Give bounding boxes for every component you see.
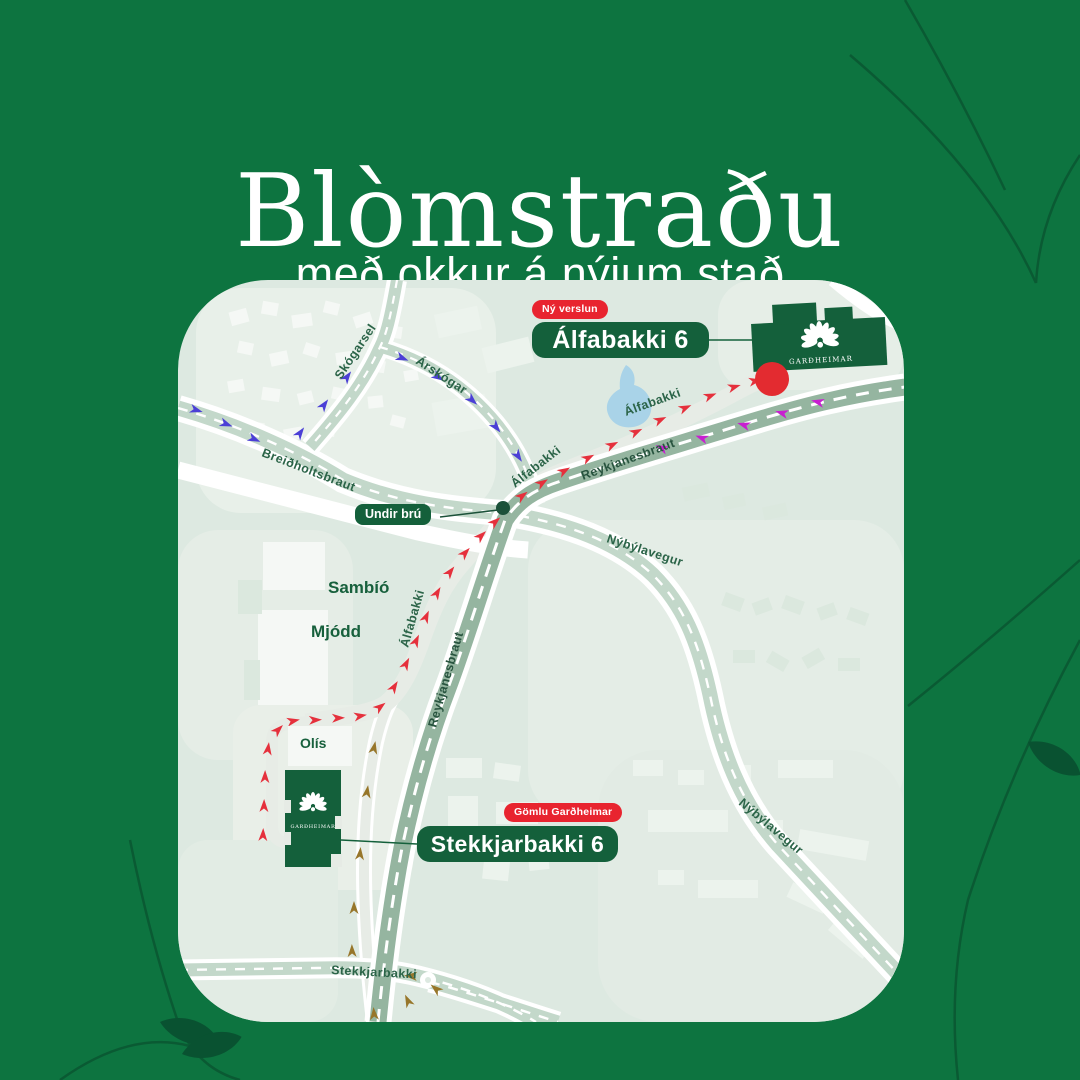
new-store-badge: Ný verslun <box>532 300 608 319</box>
old-store-address: Stekkjarbakki 6 <box>417 826 618 862</box>
new-store-address: Álfabakki 6 <box>532 322 709 358</box>
under-bridge-dot <box>496 501 510 515</box>
old-store-building: GARÐHEIMAR <box>284 770 342 867</box>
place-label-olis: Olís <box>300 735 327 751</box>
vine-stem <box>955 640 1080 1080</box>
location-map: Skógarsel Árskógar Breiðholtsbraut Álfab… <box>178 280 904 1022</box>
vine-stem <box>908 560 1080 706</box>
place-label-sambio: Sambíó <box>328 578 389 597</box>
gardheimar-wordmark: GARÐHEIMAR <box>291 824 336 830</box>
place-label-mjodd: Mjódd <box>311 622 361 641</box>
old-store-badge: Gömlu Garðheimar <box>504 803 622 822</box>
vine-stem <box>60 1042 190 1080</box>
under-bridge-badge: Undir brú <box>355 504 431 525</box>
new-location-marker <box>755 362 789 396</box>
map-graphic: Skógarsel Árskógar Breiðholtsbraut Álfab… <box>178 280 904 1022</box>
poster: Blòmstraðu með okkur á nýjum stað <box>0 0 1080 1080</box>
